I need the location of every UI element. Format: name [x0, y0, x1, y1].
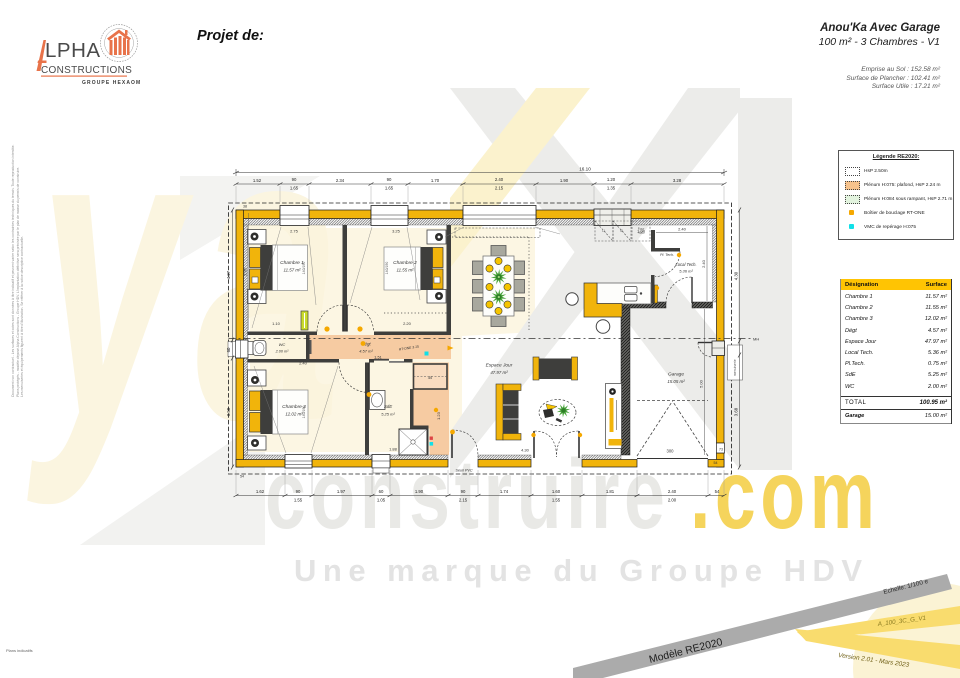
- svg-text:1.55: 1.55: [294, 498, 303, 503]
- svg-text:3.25: 3.25: [392, 229, 401, 234]
- svg-text:73: 73: [719, 448, 723, 452]
- svg-text:Chambre 1: Chambre 1: [280, 260, 304, 266]
- svg-text:3.58: 3.58: [226, 407, 231, 416]
- svg-text:47.97 m²: 47.97 m²: [490, 370, 508, 375]
- svg-text:1.74: 1.74: [500, 489, 509, 494]
- svg-text:54: 54: [240, 475, 244, 479]
- svg-text:5.25 m²: 5.25 m²: [381, 412, 395, 417]
- svg-text:2.40: 2.40: [299, 361, 308, 366]
- svg-text:11.55 m²: 11.55 m²: [396, 268, 414, 273]
- svg-text:4.57 m²: 4.57 m²: [359, 349, 373, 354]
- svg-text:1.97: 1.97: [337, 489, 346, 494]
- svg-text:2.40: 2.40: [668, 489, 677, 494]
- svg-text:1.90: 1.90: [415, 489, 424, 494]
- svg-text:2.15: 2.15: [459, 498, 468, 503]
- svg-text:2.00 m²: 2.00 m²: [275, 350, 290, 354]
- svg-text:1.00: 1.00: [637, 229, 646, 234]
- svg-text:3.95: 3.95: [244, 268, 248, 275]
- svg-text:4.30: 4.30: [734, 271, 739, 280]
- svg-text:54: 54: [714, 461, 718, 465]
- svg-text:90: 90: [296, 489, 301, 494]
- svg-text:Espace Jour: Espace Jour: [486, 363, 513, 369]
- svg-text:5.36 m²: 5.36 m²: [679, 269, 693, 274]
- svg-text:SdE: SdE: [384, 404, 392, 409]
- svg-text:90: 90: [461, 489, 466, 494]
- svg-text:1.35: 1.35: [607, 186, 616, 191]
- svg-text:1.23: 1.23: [436, 411, 441, 420]
- svg-text:1.88: 1.88: [389, 447, 398, 452]
- svg-text:SL: SL: [620, 229, 624, 233]
- svg-text:1.60: 1.60: [552, 489, 561, 494]
- svg-text:4.27: 4.27: [226, 270, 231, 279]
- svg-text:menuiserie: menuiserie: [733, 359, 737, 376]
- svg-text:WC: WC: [279, 342, 286, 347]
- svg-text:1.70: 1.70: [431, 178, 440, 183]
- svg-text:2.34: 2.34: [336, 178, 345, 183]
- svg-text:90: 90: [387, 177, 392, 182]
- svg-text:1.81: 1.81: [606, 489, 615, 494]
- svg-text:1.52: 1.52: [253, 178, 262, 183]
- svg-text:2.20: 2.20: [403, 321, 412, 326]
- svg-text:1.05: 1.05: [377, 498, 386, 503]
- svg-text:3.28: 3.28: [673, 178, 682, 183]
- svg-text:2.40: 2.40: [678, 227, 687, 232]
- svg-text:3.68: 3.68: [734, 407, 739, 416]
- svg-text:38: 38: [243, 205, 247, 209]
- svg-text:2.15: 2.15: [495, 186, 504, 191]
- svg-text:140/190: 140/190: [385, 262, 389, 275]
- svg-text:60: 60: [226, 347, 231, 352]
- svg-text:Local Tech.: Local Tech.: [675, 262, 696, 267]
- svg-text:1.20: 1.20: [607, 177, 616, 182]
- svg-text:2.75: 2.75: [290, 229, 299, 234]
- svg-text:90: 90: [292, 177, 297, 182]
- svg-text:11.57 m²: 11.57 m²: [283, 268, 301, 273]
- svg-text:1.62: 1.62: [256, 489, 265, 494]
- svg-text:1.51: 1.51: [374, 356, 381, 360]
- svg-text:LL: LL: [602, 229, 606, 233]
- svg-text:16.10: 16.10: [579, 167, 591, 172]
- svg-text:1.55: 1.55: [552, 498, 561, 503]
- svg-text:2.00: 2.00: [668, 498, 677, 503]
- svg-text:1.10: 1.10: [272, 321, 281, 326]
- svg-text:2.40: 2.40: [495, 177, 504, 182]
- svg-text:MH: MH: [753, 337, 759, 342]
- svg-text:Pl. Tech.: Pl. Tech.: [660, 253, 674, 257]
- svg-text:2.40: 2.40: [701, 259, 706, 268]
- svg-text:54: 54: [715, 489, 720, 494]
- svg-text:Garage: Garage: [668, 372, 684, 378]
- svg-text:300: 300: [667, 449, 675, 454]
- svg-text:15.05 m²: 15.05 m²: [667, 379, 685, 384]
- svg-text:Chambre 3: Chambre 3: [282, 404, 306, 410]
- svg-text:1.90: 1.90: [560, 178, 569, 183]
- svg-text:1.65: 1.65: [385, 186, 394, 191]
- svg-text:60: 60: [379, 489, 384, 494]
- svg-text:1.65: 1.65: [290, 186, 299, 191]
- svg-text:Seuil PVC: Seuil PVC: [455, 469, 473, 473]
- svg-text:5.00: 5.00: [699, 379, 704, 388]
- svg-text:4.30: 4.30: [521, 448, 530, 453]
- svg-text:12.02 m²: 12.02 m²: [285, 412, 303, 417]
